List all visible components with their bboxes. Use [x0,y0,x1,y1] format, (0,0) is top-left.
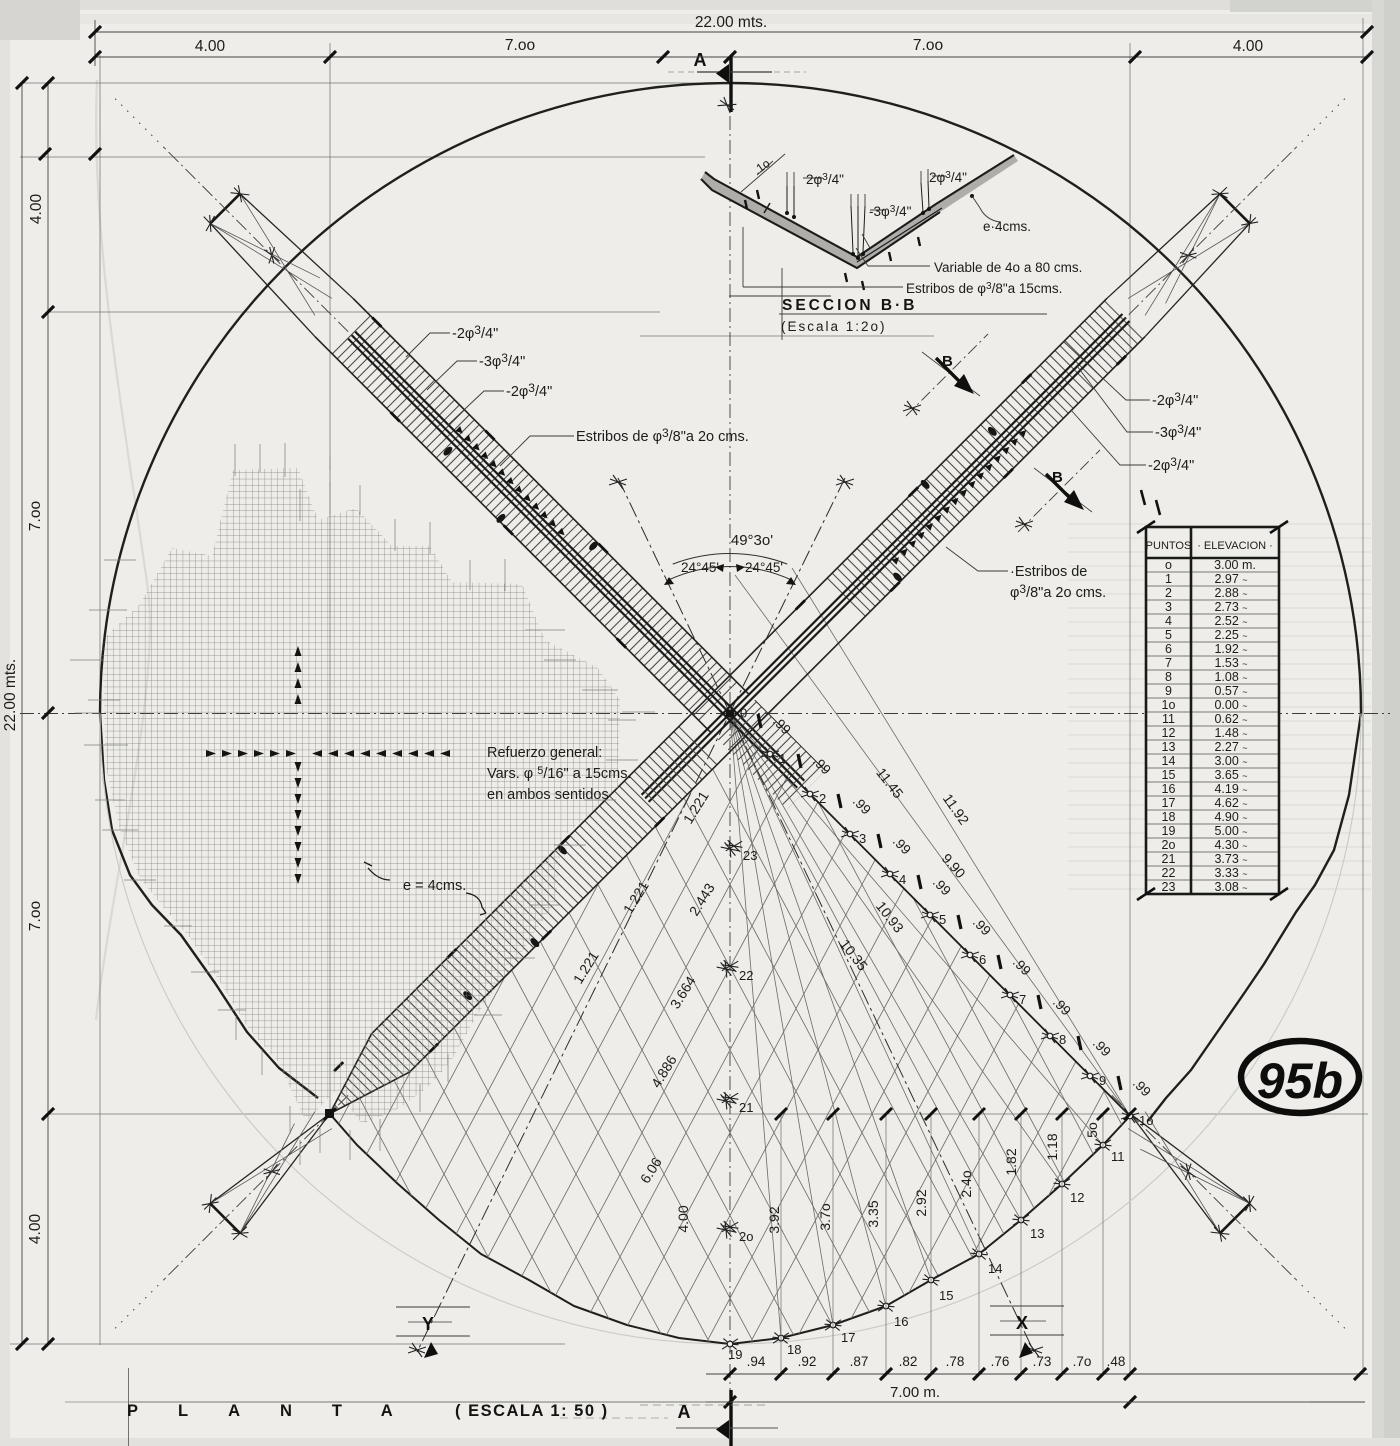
svg-text:3: 3 [1165,600,1172,614]
svg-text:1: 1 [1165,572,1172,586]
svg-text:21: 21 [739,1100,753,1115]
svg-text:11: 11 [1111,1149,1125,1164]
svg-text:0.00 ~: 0.00 ~ [1214,698,1247,712]
svg-text:12: 12 [1162,726,1176,740]
svg-text:4: 4 [899,872,906,887]
svg-text:4.62 ~: 4.62 ~ [1214,796,1247,810]
svg-text:B: B [942,353,953,370]
svg-text:.7o: .7o [1073,1354,1092,1369]
svg-text:24°45': 24°45' [745,560,783,575]
svg-text:17: 17 [1162,796,1176,810]
svg-text:4.00: 4.00 [675,1205,691,1232]
svg-text:2.27 ~: 2.27 ~ [1214,740,1247,754]
svg-text:PUNTOS: PUNTOS [1146,540,1192,552]
svg-text:2.97 ~: 2.97 ~ [1214,572,1247,586]
svg-text:6: 6 [979,952,986,967]
svg-text:14: 14 [1162,754,1176,768]
svg-text:4.00: 4.00 [27,1214,44,1245]
svg-text:.48: .48 [1107,1354,1126,1369]
svg-text:2.4o: 2.4o [958,1170,974,1197]
svg-text:7.oo: 7.oo [27,501,44,531]
svg-text:2: 2 [819,791,826,806]
svg-text:.92: .92 [798,1354,817,1369]
svg-text:0.62 ~: 0.62 ~ [1214,712,1247,726]
svg-text:7: 7 [1165,656,1172,670]
svg-text:8: 8 [1059,1032,1066,1047]
svg-text:17: 17 [841,1330,855,1345]
svg-text:3.33 ~: 3.33 ~ [1214,866,1247,880]
svg-text:SECCION B·B: SECCION B·B [782,297,917,314]
svg-text:.78: .78 [946,1354,965,1369]
svg-text:PLANTA: PLANTA [127,1402,433,1420]
svg-text:7.oo: 7.oo [913,37,943,54]
svg-text:2o: 2o [1162,838,1176,852]
svg-text:.87: .87 [850,1354,869,1369]
svg-text:( ESCALA 1: 50 ): ( ESCALA 1: 50 ) [455,1402,609,1420]
svg-text:5: 5 [939,912,946,927]
svg-text:1.92 ~: 1.92 ~ [1214,642,1247,656]
svg-text:A: A [678,1402,691,1422]
svg-text:95b: 95b [1257,1053,1343,1109]
svg-text:·Estribos de: ·Estribos de [1010,564,1087,580]
svg-text:21: 21 [1162,852,1176,866]
svg-text:4.00: 4.00 [28,194,45,225]
svg-text:22: 22 [1162,866,1176,880]
svg-text:6: 6 [1165,642,1172,656]
svg-text:4.19 ~: 4.19 ~ [1214,782,1247,796]
svg-text:2.88 ~: 2.88 ~ [1214,586,1247,600]
svg-text:o: o [1165,558,1172,572]
svg-text:(Escala 1:2o): (Escala 1:2o) [781,319,887,334]
svg-text:Y: Y [422,1314,434,1334]
svg-text:.82: .82 [899,1354,918,1369]
svg-text:16: 16 [1162,782,1176,796]
svg-text:1.18: 1.18 [1044,1133,1060,1160]
svg-text:2.92: 2.92 [913,1189,929,1216]
svg-text:7.oo: 7.oo [27,901,44,931]
svg-text:5: 5 [1165,628,1172,642]
svg-text:8: 8 [1165,670,1172,684]
svg-text:Variable de 4o a 80 cms.: Variable de 4o a 80 cms. [934,260,1082,275]
svg-text:3.00 ~: 3.00 ~ [1214,754,1247,768]
svg-text:9: 9 [1099,1073,1106,1088]
svg-text:1.08 ~: 1.08 ~ [1214,670,1247,684]
svg-text:3.7o: 3.7o [817,1203,833,1230]
svg-text:1.82: 1.82 [1003,1148,1019,1175]
svg-text:14: 14 [988,1261,1002,1276]
svg-text:A: A [694,50,707,70]
svg-text:4.90 ~: 4.90 ~ [1214,810,1247,824]
svg-text:22: 22 [739,968,753,983]
svg-text:X: X [1016,1313,1028,1333]
svg-text:3.73 ~: 3.73 ~ [1214,852,1247,866]
svg-text:1o: 1o [1162,698,1176,712]
svg-text:4.00: 4.00 [195,38,226,55]
svg-text:e = 4cms.: e = 4cms. [403,878,466,894]
svg-text:11: 11 [1162,712,1175,726]
svg-text:en ambos sentidos: en ambos sentidos [487,787,609,803]
svg-text:22.00 mts.: 22.00 mts. [2,659,19,731]
svg-text:B: B [1052,469,1063,486]
svg-text:2.73 ~: 2.73 ~ [1214,600,1247,614]
svg-text:7: 7 [1019,992,1026,1007]
svg-text:15: 15 [1162,768,1176,782]
svg-text:7.00 m.: 7.00 m. [890,1384,940,1401]
svg-text:24°45': 24°45' [681,560,719,575]
svg-text:3: 3 [859,831,866,846]
svg-text:9: 9 [1165,684,1172,698]
svg-text:1.48 ~: 1.48 ~ [1214,726,1247,740]
svg-text:1o: 1o [1139,1113,1153,1128]
svg-text:18: 18 [1162,810,1176,824]
svg-text:13: 13 [1162,740,1176,754]
svg-text:4.00: 4.00 [1233,38,1264,55]
svg-text:12: 12 [1070,1190,1084,1205]
svg-text:19: 19 [1162,824,1176,838]
svg-text:2.52 ~: 2.52 ~ [1214,614,1247,628]
svg-text:4: 4 [1165,614,1172,628]
svg-text:3.08 ~: 3.08 ~ [1214,880,1247,894]
svg-text:3.65 ~: 3.65 ~ [1214,768,1247,782]
svg-text:.76: .76 [991,1354,1010,1369]
svg-text:2.25 ~: 2.25 ~ [1214,628,1247,642]
svg-text:23: 23 [743,848,757,863]
svg-text:3.92: 3.92 [766,1206,782,1233]
svg-text:.5o: .5o [1084,1122,1100,1142]
svg-text:23: 23 [1162,880,1176,894]
svg-text:5.00 ~: 5.00 ~ [1214,824,1247,838]
svg-text:2: 2 [1165,586,1172,600]
svg-text:7.oo: 7.oo [505,37,535,54]
svg-text:Vars. φ 5/16" a 15cms.: Vars. φ 5/16" a 15cms. [487,765,632,782]
svg-text:3.35: 3.35 [865,1200,881,1227]
svg-text:Estribos de φ3/8"a 15cms.: Estribos de φ3/8"a 15cms. [906,281,1062,296]
svg-text:1.53 ~: 1.53 ~ [1214,656,1247,670]
svg-text:.94: .94 [747,1354,766,1369]
svg-text:Refuerzo general:: Refuerzo general: [487,745,602,761]
svg-text:49°3o': 49°3o' [731,532,773,549]
svg-text:e·4cms.: e·4cms. [983,219,1031,234]
svg-text:1: 1 [779,751,786,766]
svg-text:3.00 m.: 3.00 m. [1214,558,1256,572]
svg-text:4.30 ~: 4.30 ~ [1214,838,1247,852]
svg-text:19: 19 [728,1347,742,1362]
svg-text:15: 15 [939,1288,953,1303]
svg-text:22.00 mts.: 22.00 mts. [695,14,767,31]
svg-text:· ELEVACION ·: · ELEVACION · [1197,540,1273,552]
svg-text:0.57 ~: 0.57 ~ [1214,684,1247,698]
svg-text:2o: 2o [739,1229,753,1244]
svg-text:.73: .73 [1033,1354,1052,1369]
svg-text:13: 13 [1030,1226,1044,1241]
svg-text:0: 0 [740,706,747,721]
svg-text:16: 16 [894,1314,908,1329]
